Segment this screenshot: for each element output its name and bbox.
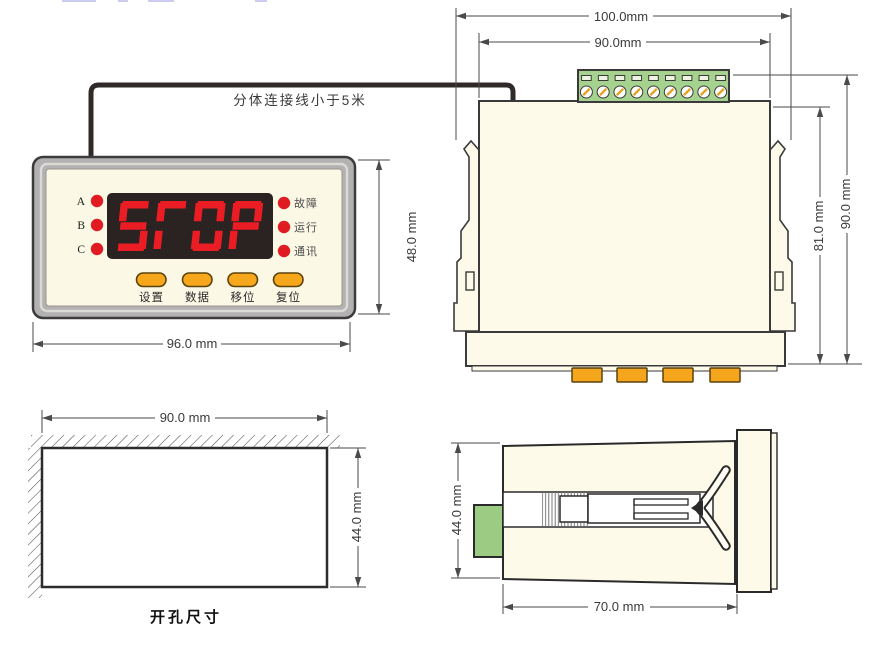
status-label: 故障 (294, 196, 318, 210)
led-icon (278, 245, 290, 257)
rear-view: 100.0mm 90.0mm (454, 8, 862, 382)
segment-g (120, 222, 147, 230)
button-pill (228, 273, 258, 287)
button-label: 设置 (139, 291, 164, 304)
cutout-view: 90.0 mm 44.0 mm 开孔尺寸 (28, 410, 366, 626)
led-icon (91, 243, 103, 255)
button-label: 移位 (231, 290, 256, 304)
svg-text:70.0 mm: 70.0 mm (594, 599, 645, 614)
rear-body (479, 101, 770, 332)
side-depth-dimension: 70.0 mm (503, 584, 737, 614)
front-height-dimension: 48.0 mm (358, 160, 419, 314)
side-view: 44.0 mm 70.0 mm (449, 430, 777, 614)
svg-text:44.0 mm: 44.0 mm (449, 485, 464, 536)
terminal-slot (716, 76, 726, 81)
status-led-comm: 通讯 (278, 245, 318, 258)
terminal-slot (615, 76, 625, 81)
svg-text:81.0 mm: 81.0 mm (811, 201, 826, 252)
front-width-dimension: 96.0 mm (33, 322, 350, 352)
cutout-rectangle (42, 448, 327, 587)
led-icon (278, 197, 290, 209)
button-pill (274, 273, 304, 287)
segment-g (232, 222, 259, 230)
terminal-slot (699, 76, 709, 81)
wall-hatch-top (31, 435, 340, 448)
clip-notch-right (775, 272, 783, 290)
phase-label: B (77, 220, 85, 232)
front-bezel-rear-view (466, 332, 785, 366)
terminal-slot (598, 76, 608, 81)
terminal-slot (682, 76, 692, 81)
technical-drawing-page: 分体连接线小于5米 A B C 故障 运行 (0, 0, 875, 650)
terminal-screws (580, 76, 726, 99)
button-label: 数据 (185, 290, 210, 304)
svg-text:44.0 mm: 44.0 mm (349, 492, 364, 543)
svg-text:48.0 mm: 48.0 mm (404, 212, 419, 263)
connection-note: 分体连接线小于5米 (233, 92, 367, 108)
svg-text:90.0 mm: 90.0 mm (160, 410, 211, 425)
status-label: 运行 (294, 221, 318, 234)
led-icon (278, 221, 290, 233)
clip-notch-left (466, 272, 474, 290)
cutout-width-dimension: 90.0 mm (42, 410, 327, 433)
terminal-slot (582, 76, 592, 81)
svg-text:90.0mm: 90.0mm (595, 35, 642, 50)
segment-d (118, 244, 145, 252)
cutout-height-dimension: 44.0 mm (330, 448, 366, 587)
terminal-block-side (474, 505, 503, 557)
button-pill (183, 273, 213, 287)
svg-text:96.0 mm: 96.0 mm (167, 336, 218, 351)
phase-label: C (77, 244, 85, 256)
svg-text:90.0 mm: 90.0 mm (838, 179, 853, 230)
front-view: A B C 故障 运行 通讯 设置 数据 (33, 157, 355, 318)
status-led-run: 运行 (278, 221, 318, 234)
button-label: 复位 (276, 290, 301, 304)
terminal-slot (649, 76, 659, 81)
clipped-text-artifact (62, 0, 267, 2)
mounting-clip-left (454, 141, 479, 331)
terminal-slot (632, 76, 642, 81)
cutout-caption: 开孔尺寸 (150, 608, 222, 626)
terminal-slot (666, 76, 676, 81)
svg-text:100.0mm: 100.0mm (594, 9, 648, 24)
mounting-clip-right (770, 141, 795, 331)
led-icon (91, 195, 103, 207)
button-pill (137, 273, 167, 287)
status-label: 通讯 (294, 245, 318, 258)
front-bezel-side-view (737, 430, 771, 592)
bezel-lip-side (771, 433, 777, 589)
phase-label: A (77, 196, 86, 208)
drawing-canvas: 分体连接线小于5米 A B C 故障 运行 (0, 0, 875, 650)
led-icon (91, 219, 103, 231)
clip-slider (560, 496, 588, 522)
terminal-block (578, 70, 729, 102)
wall-hatch-left (28, 448, 42, 598)
status-led-fault: 故障 (278, 196, 318, 210)
